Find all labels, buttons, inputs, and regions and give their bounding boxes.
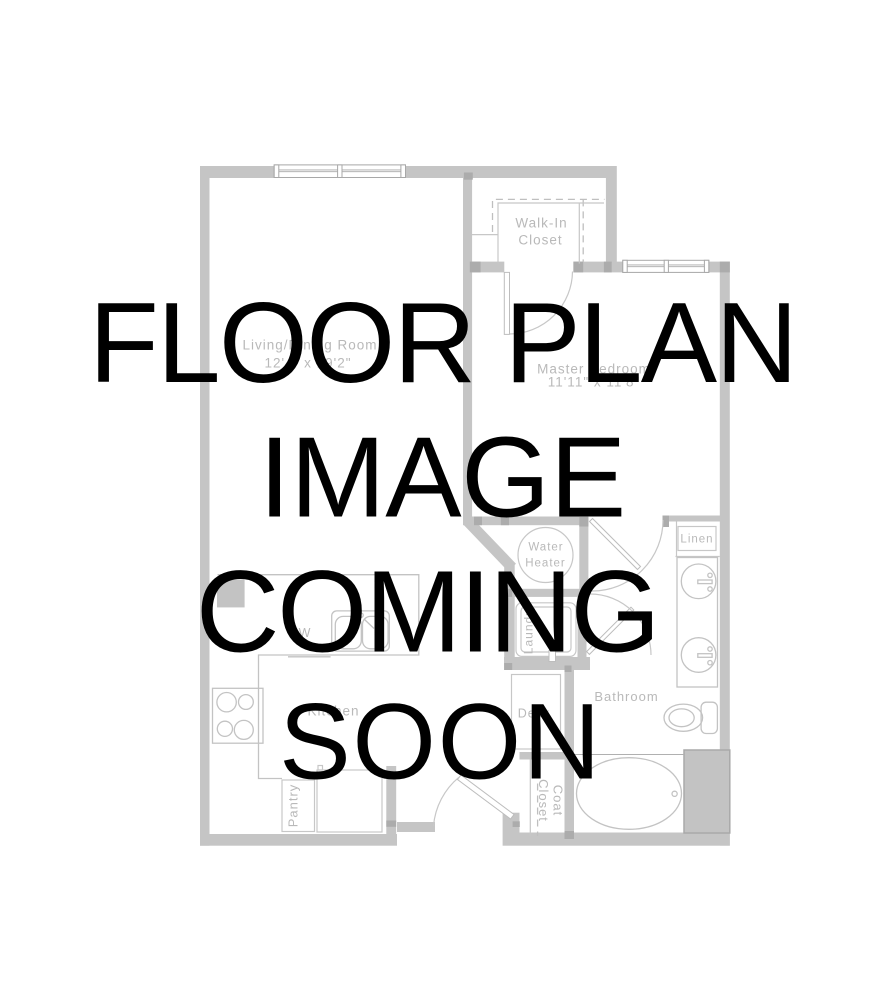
svg-text:Closet: Closet: [518, 233, 562, 248]
svg-text:COMING: COMING: [196, 547, 658, 677]
svg-text:IMAGE: IMAGE: [259, 414, 626, 542]
svg-text:FLOOR PLAN: FLOOR PLAN: [89, 279, 796, 407]
svg-text:Bathroom: Bathroom: [594, 689, 658, 704]
svg-text:Walk-In: Walk-In: [515, 216, 567, 231]
svg-text:Linen: Linen: [680, 534, 713, 546]
svg-text:SOON: SOON: [279, 682, 602, 802]
